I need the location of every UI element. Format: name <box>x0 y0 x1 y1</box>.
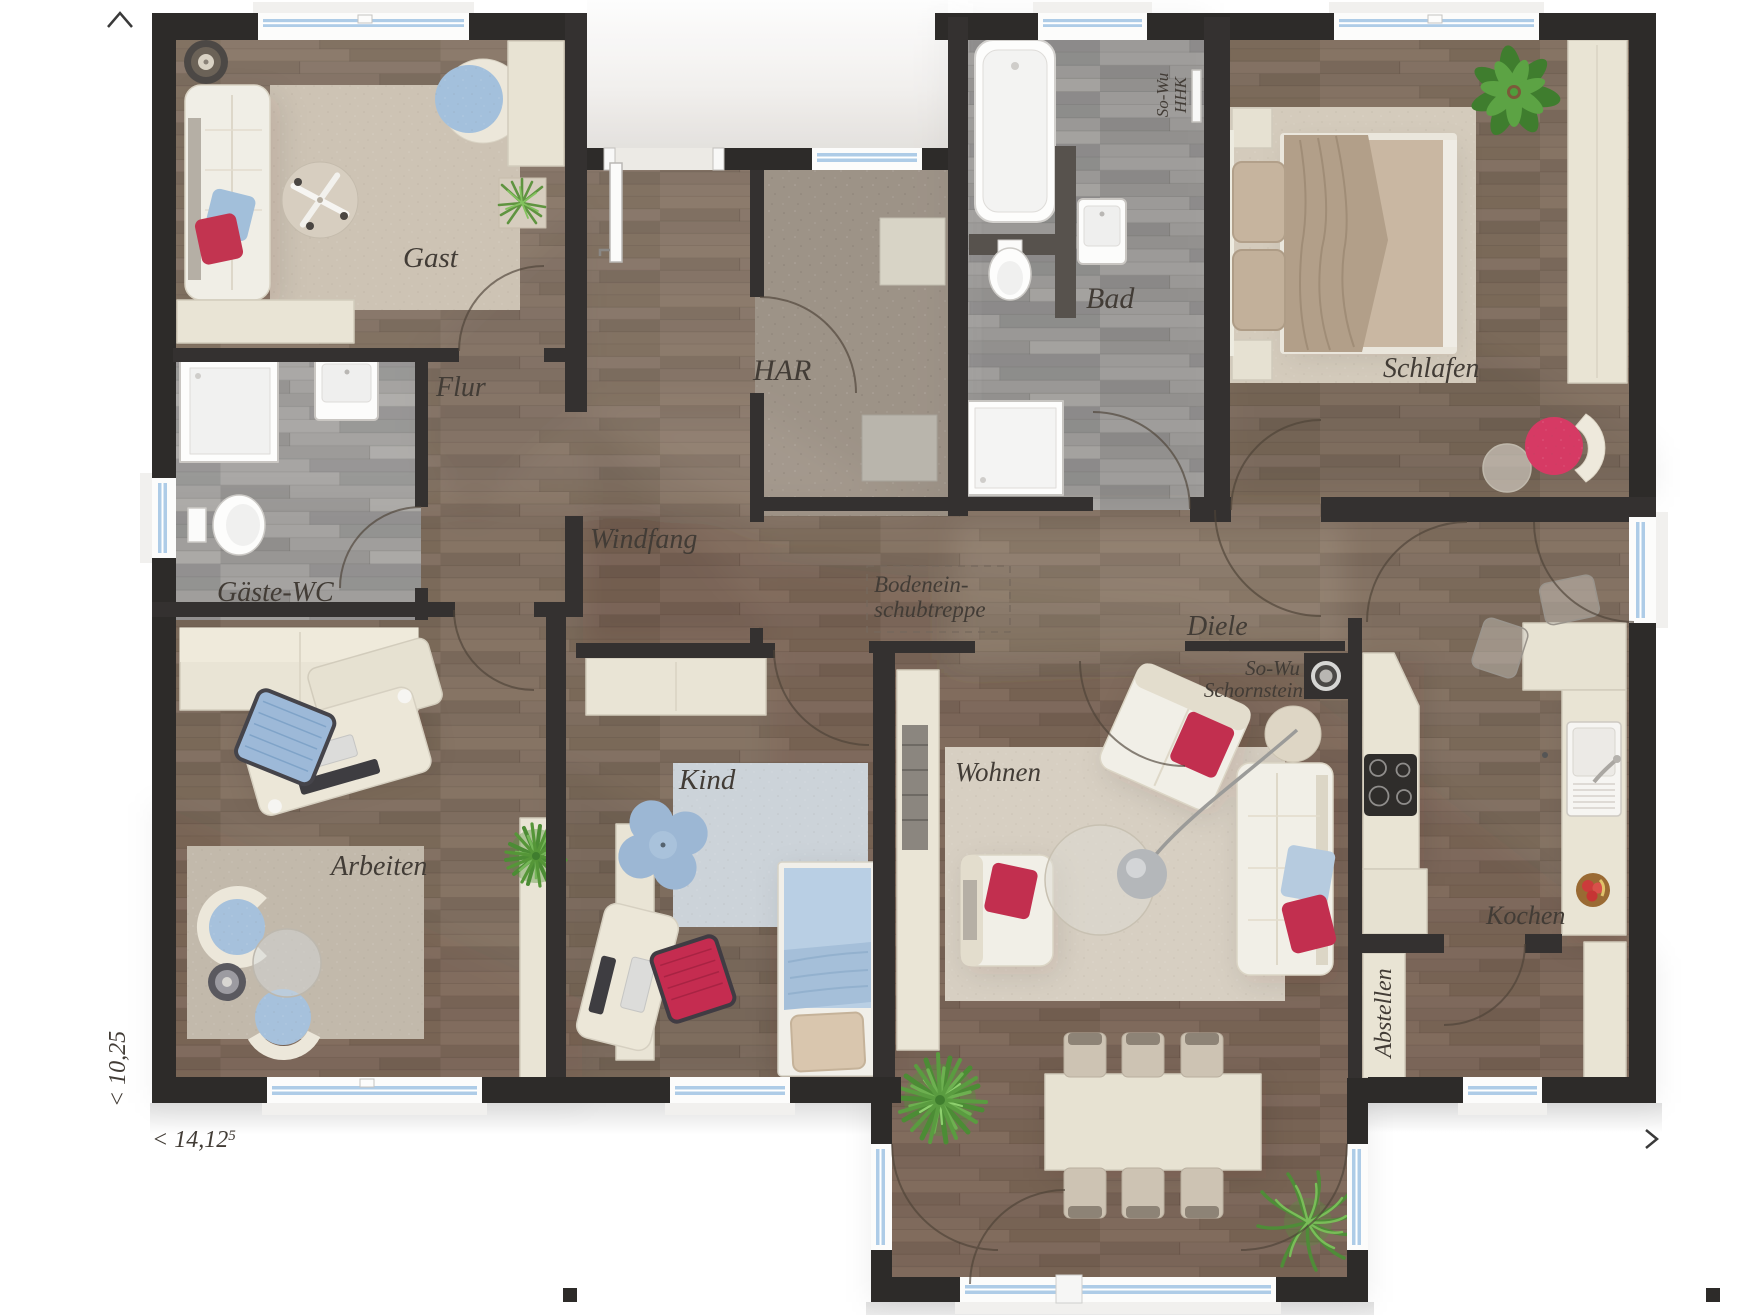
svg-text:Abstellen: Abstellen <box>1371 968 1397 1059</box>
svg-text:schubtreppe: schubtreppe <box>874 597 986 622</box>
svg-text:< 14,125: < 14,125 <box>152 1127 236 1153</box>
svg-text:Flur: Flur <box>435 372 486 403</box>
svg-text:Bad: Bad <box>1086 282 1135 315</box>
svg-text:Kind: Kind <box>678 764 736 796</box>
svg-text:HAR: HAR <box>752 354 811 387</box>
svg-text:Windfang: Windfang <box>590 524 697 555</box>
svg-text:Arbeiten: Arbeiten <box>329 851 427 882</box>
svg-text:Schlafen: Schlafen <box>1383 353 1479 384</box>
svg-text:Gast: Gast <box>403 242 459 274</box>
svg-text:So-Wu: So-Wu <box>1245 656 1300 680</box>
svg-text:So-Wu: So-Wu <box>1153 73 1172 117</box>
svg-text:< 10,25: < 10,25 <box>105 1031 131 1107</box>
svg-text:Diele: Diele <box>1186 611 1248 642</box>
svg-text:Wohnen: Wohnen <box>955 757 1041 787</box>
svg-text:HHK: HHK <box>1171 75 1190 114</box>
svg-text:Schornstein: Schornstein <box>1204 678 1303 702</box>
svg-text:Kochen: Kochen <box>1485 901 1565 930</box>
svg-text:Bodenein-: Bodenein- <box>874 572 969 597</box>
svg-text:Gäste-WC: Gäste-WC <box>217 577 334 608</box>
